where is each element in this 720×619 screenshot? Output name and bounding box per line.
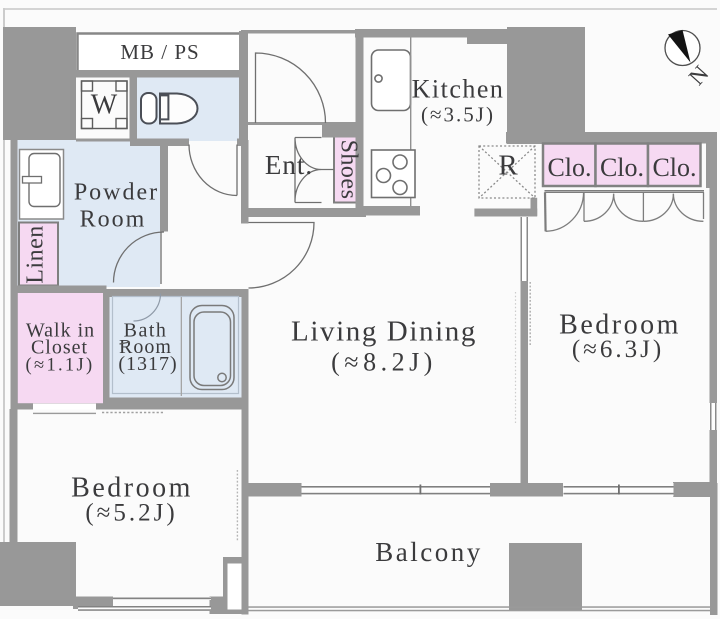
svg-text:(≈8.2J): (≈8.2J)	[331, 348, 437, 377]
svg-text:R: R	[498, 150, 518, 182]
svg-text:(1317): (1317)	[118, 353, 177, 375]
svg-text:Clo.: Clo.	[600, 153, 644, 182]
svg-text:(≈6.3J): (≈6.3J)	[572, 336, 664, 363]
svg-text:Clo.: Clo.	[652, 153, 696, 182]
svg-text:(≈1.1J): (≈1.1J)	[26, 356, 95, 376]
svg-text:W: W	[91, 90, 118, 121]
svg-text:MB / PS: MB / PS	[120, 40, 199, 64]
svg-text:Living Dining: Living Dining	[291, 316, 477, 348]
svg-text:Balcony: Balcony	[375, 537, 482, 567]
svg-text:(≈5.2J): (≈5.2J)	[85, 500, 177, 527]
svg-text:Kitchen: Kitchen	[412, 75, 505, 104]
svg-text:Clo.: Clo.	[547, 153, 591, 182]
svg-text:Room: Room	[80, 207, 147, 233]
svg-text:Ent.: Ent.	[265, 150, 313, 180]
svg-text:Shoes: Shoes	[336, 140, 362, 200]
svg-text:Linen: Linen	[23, 225, 49, 283]
svg-text:Powder: Powder	[74, 180, 159, 206]
svg-text:(≈3.5J): (≈3.5J)	[421, 103, 495, 127]
